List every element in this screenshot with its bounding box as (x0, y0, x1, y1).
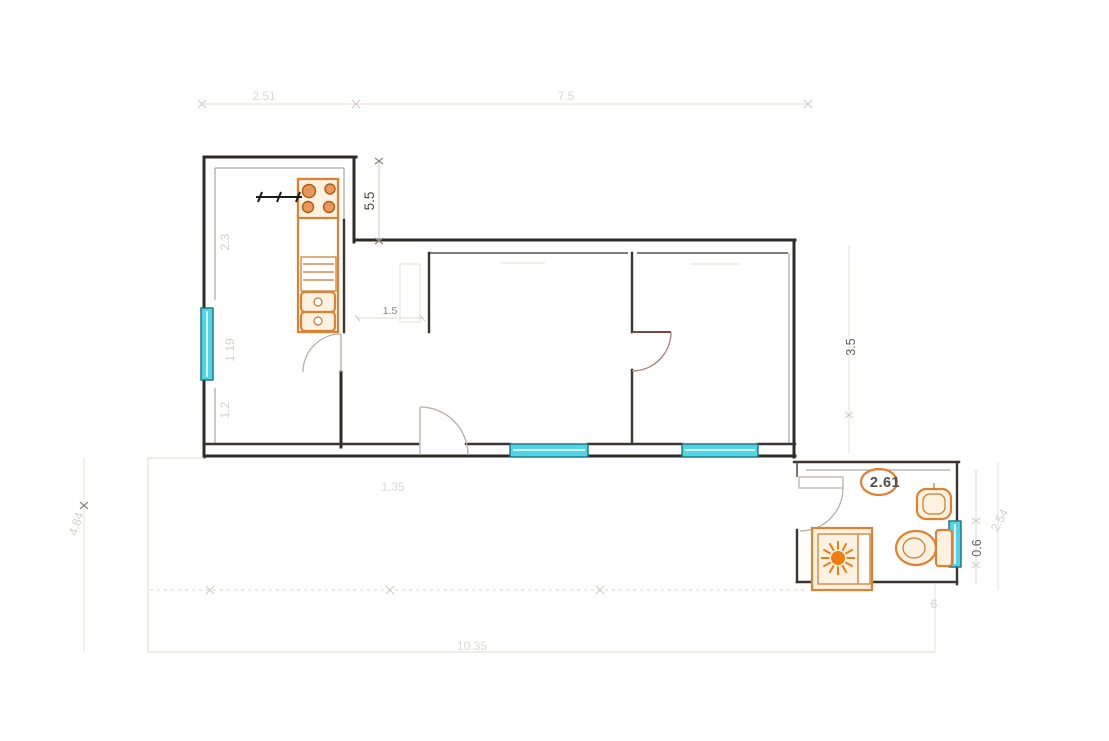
dim-right-wall-height: 3.5 (844, 338, 858, 355)
bathroom-door (799, 477, 843, 531)
living-entrance-door (420, 407, 468, 455)
dim-bathroom-height: 2.54 (988, 506, 1011, 533)
floor-plan-svg: 2.51 7.5 5.5 2.3 1.19 1.2 1.5 3.5 4.84 2… (0, 0, 1109, 741)
appliance-frame (301, 257, 336, 291)
shower-icon (812, 528, 872, 590)
dim-kitchen-lower-wall: 1.2 (218, 401, 232, 418)
dim-kitchen-door-width: 1.5 (383, 305, 398, 317)
dim-top-right-width: 7.5 (558, 89, 575, 103)
stove-burner-2 (325, 184, 335, 194)
stove-burner-1 (303, 185, 316, 198)
stove-burner-3 (303, 202, 314, 213)
sink-drain-lower (314, 317, 322, 325)
walls (204, 157, 959, 584)
dim-mark-kitchen-counter (256, 192, 302, 202)
living-window (510, 444, 588, 457)
sink-drain-upper (314, 298, 322, 306)
stove-icon (298, 179, 338, 218)
doors (303, 332, 843, 531)
dim-terrace-inner: 1.35 (381, 480, 405, 494)
dim-kitchen-upper-wall: 2.3 (218, 233, 232, 250)
dim-terrace-left-height: 4.84 (66, 510, 87, 537)
toilet-tank (936, 530, 952, 566)
stove-burner-4 (324, 202, 335, 213)
sunburst-core (831, 551, 845, 565)
closet-outline (400, 264, 420, 322)
bedroom-door (632, 332, 671, 371)
dim-bottom-total: 10.35 (457, 639, 487, 653)
tick-cross-2 (386, 586, 394, 594)
appliance-icon (301, 257, 336, 291)
dim-bathroom-window: 0.6 (970, 539, 984, 556)
dim-top-left-width: 2.51 (252, 89, 276, 103)
hand-sink-icon (917, 483, 951, 519)
bathroom-door-leaf (799, 477, 843, 488)
toilet-icon (896, 530, 952, 566)
kitchen-door-arc (303, 334, 341, 372)
kitchen-window (201, 308, 213, 380)
shower-side-panel (858, 534, 870, 584)
floor-plan-canvas: 2.51 7.5 5.5 2.3 1.19 1.2 1.5 3.5 4.84 2… (0, 0, 1109, 741)
toilet-bowl (896, 531, 936, 565)
bathroom-door-arc (800, 488, 843, 531)
dim-kitchen-window-span: 1.19 (223, 338, 237, 362)
double-sink-icon (301, 292, 335, 331)
living-door-arc (420, 407, 468, 455)
dim-kitchen-depth: 5.5 (362, 192, 377, 211)
bedroom-window (682, 444, 758, 457)
dim-bathroom-width: 2.61 (870, 475, 900, 491)
dim-bathroom-small-mark: 6 (931, 597, 938, 611)
bedroom-door-arc (632, 332, 671, 371)
tick-cross-3 (596, 586, 604, 594)
kitchen-fixtures (256, 179, 338, 332)
kitchen-door (303, 334, 341, 372)
